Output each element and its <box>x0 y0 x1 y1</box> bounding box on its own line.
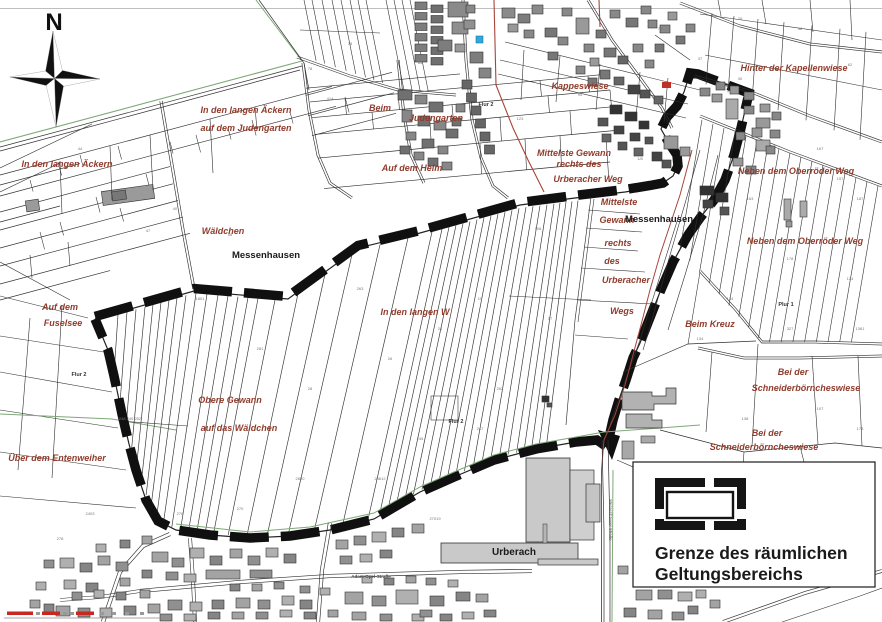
svg-text:Kappeswiese: Kappeswiese <box>551 81 608 91</box>
svg-text:40: 40 <box>173 206 178 211</box>
svg-text:In den langen W: In den langen W <box>381 307 452 317</box>
svg-text:47: 47 <box>146 228 151 233</box>
svg-text:138: 138 <box>742 416 749 421</box>
svg-text:178: 178 <box>787 256 794 261</box>
svg-text:78: 78 <box>308 66 313 71</box>
svg-text:38: 38 <box>798 26 803 31</box>
svg-text:276: 276 <box>177 511 184 516</box>
svg-text:Schneiderbörncheswiese: Schneiderbörncheswiese <box>710 442 819 452</box>
svg-text:37: 37 <box>698 56 703 61</box>
svg-text:In den langen Äckern: In den langen Äckern <box>21 159 113 169</box>
svg-text:N: N <box>45 9 62 36</box>
svg-text:73: 73 <box>658 26 663 31</box>
svg-text:62: 62 <box>848 62 853 67</box>
svg-text:1801: 1801 <box>196 296 206 301</box>
svg-text:26: 26 <box>388 356 393 361</box>
svg-text:Judengarten: Judengarten <box>409 113 464 123</box>
svg-text:Grenze des räumlichen: Grenze des räumlichen <box>655 543 848 563</box>
svg-text:167: 167 <box>817 146 824 151</box>
svg-text:Urberacher Weg: Urberacher Weg <box>553 174 623 184</box>
svg-text:163: 163 <box>747 196 754 201</box>
svg-text:Beim Kreuz: Beim Kreuz <box>685 319 735 329</box>
svg-text:Messenhäuser Straße: Messenhäuser Straße <box>608 499 613 541</box>
svg-text:Fuselsee: Fuselsee <box>44 318 83 328</box>
svg-text:2850: 2850 <box>296 476 306 481</box>
svg-text:84: 84 <box>418 60 423 65</box>
svg-text:78: 78 <box>348 41 353 46</box>
svg-text:24: 24 <box>438 326 443 331</box>
svg-text:27019: 27019 <box>429 516 441 521</box>
svg-text:Obere Gewann: Obere Gewann <box>198 395 262 405</box>
svg-text:10: 10 <box>478 296 483 301</box>
svg-text:2403: 2403 <box>86 511 96 516</box>
svg-text:auf das Wäldchen: auf das Wäldchen <box>201 423 278 433</box>
svg-text:Schneiderbörncheswiese: Schneiderbörncheswiese <box>752 383 861 393</box>
svg-text:134: 134 <box>697 336 704 341</box>
svg-text:281: 281 <box>257 346 264 351</box>
svg-text:37: 37 <box>548 316 553 321</box>
svg-text:Neben dem Oberröder Weg: Neben dem Oberröder Weg <box>738 166 855 176</box>
svg-text:1/8: 1/8 <box>637 156 643 161</box>
svg-text:Auf dem: Auf dem <box>41 302 78 312</box>
svg-text:1361: 1361 <box>856 326 866 331</box>
svg-text:30: 30 <box>738 76 743 81</box>
svg-text:Auf dem Heim: Auf dem Heim <box>381 163 443 173</box>
svg-text:270: 270 <box>237 506 244 511</box>
svg-text:327: 327 <box>787 326 794 331</box>
svg-text:Bei der: Bei der <box>752 428 783 438</box>
svg-text:Plur 1: Plur 1 <box>778 302 793 308</box>
svg-text:Über dem Entenweiher: Über dem Entenweiher <box>8 453 106 463</box>
svg-text:In den langen Äckern: In den langen Äckern <box>200 105 292 115</box>
svg-text:Mittelste Gewann: Mittelste Gewann <box>537 148 612 158</box>
svg-text:Neben dem Oberröder Weg: Neben dem Oberröder Weg <box>747 236 864 246</box>
svg-text:Messenhausen: Messenhausen <box>625 214 693 225</box>
svg-text:124: 124 <box>847 276 854 281</box>
svg-text:44: 44 <box>78 146 83 151</box>
svg-text:Messenhausen: Messenhausen <box>232 250 300 261</box>
svg-text:Mittelste: Mittelste <box>601 197 638 207</box>
svg-text:263: 263 <box>357 286 364 291</box>
svg-text:Adam-Opel-Straße: Adam-Opel-Straße <box>351 574 391 579</box>
svg-text:414: 414 <box>327 96 334 101</box>
svg-text:58: 58 <box>228 232 233 237</box>
svg-text:Wegs: Wegs <box>610 306 634 316</box>
svg-text:247: 247 <box>477 426 484 431</box>
svg-text:94: 94 <box>578 92 583 97</box>
svg-text:Flur 2: Flur 2 <box>72 372 87 378</box>
svg-text:70: 70 <box>738 16 743 21</box>
svg-text:24612: 24612 <box>374 476 386 481</box>
svg-text:Urberacher: Urberacher <box>602 275 651 285</box>
svg-text:Geltungsbereichs: Geltungsbereichs <box>655 564 803 584</box>
svg-text:Urberach: Urberach <box>492 547 536 558</box>
svg-text:Hinter der Kapellenwiese: Hinter der Kapellenwiese <box>740 63 847 73</box>
svg-text:34: 34 <box>768 116 773 121</box>
svg-text:187: 187 <box>857 196 864 201</box>
svg-text:Flur 2: Flur 2 <box>479 102 494 108</box>
svg-text:Bei der: Bei der <box>778 367 809 377</box>
svg-text:Flur 2: Flur 2 <box>449 419 464 425</box>
svg-text:Wäldchen: Wäldchen <box>202 226 245 236</box>
svg-text:173: 173 <box>857 426 864 431</box>
svg-text:134: 134 <box>727 296 734 301</box>
svg-text:rechts des: rechts des <box>556 159 601 169</box>
svg-text:107: 107 <box>817 406 824 411</box>
svg-text:28: 28 <box>308 386 313 391</box>
svg-text:248 249 252: 248 249 252 <box>119 416 142 421</box>
svg-text:rechts: rechts <box>604 238 631 248</box>
svg-text:des: des <box>604 256 620 266</box>
svg-text:108: 108 <box>535 226 542 231</box>
svg-text:123: 123 <box>517 116 524 121</box>
svg-text:Beim: Beim <box>369 103 391 113</box>
svg-text:auf dem Judengarten: auf dem Judengarten <box>200 123 292 133</box>
svg-text:245: 245 <box>417 436 424 441</box>
svg-text:278: 278 <box>57 536 64 541</box>
svg-text:157: 157 <box>837 176 844 181</box>
svg-text:262: 262 <box>497 386 504 391</box>
